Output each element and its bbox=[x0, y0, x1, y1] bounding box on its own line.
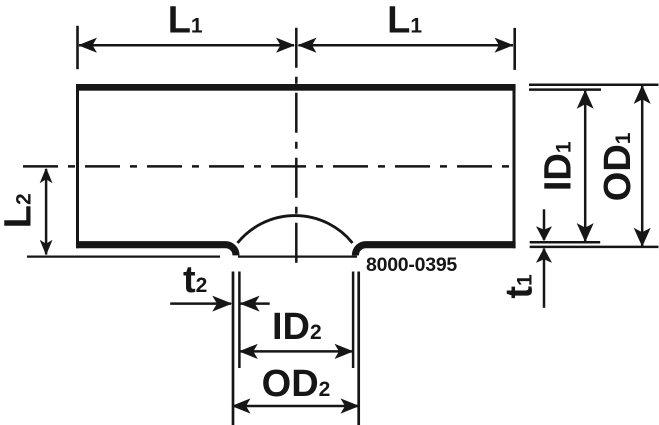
svg-text:OD2: OD2 bbox=[262, 363, 331, 405]
svg-text:OD1: OD1 bbox=[597, 132, 639, 201]
svg-text:L1: L1 bbox=[168, 0, 203, 41]
svg-text:L2: L2 bbox=[0, 193, 39, 228]
svg-text:ID1: ID1 bbox=[537, 141, 579, 191]
svg-text:8000-0395: 8000-0395 bbox=[366, 254, 457, 276]
svg-text:L1: L1 bbox=[387, 0, 422, 41]
svg-text:t2: t2 bbox=[183, 259, 207, 301]
svg-text:t1: t1 bbox=[498, 274, 540, 299]
svg-text:ID2: ID2 bbox=[272, 306, 322, 348]
